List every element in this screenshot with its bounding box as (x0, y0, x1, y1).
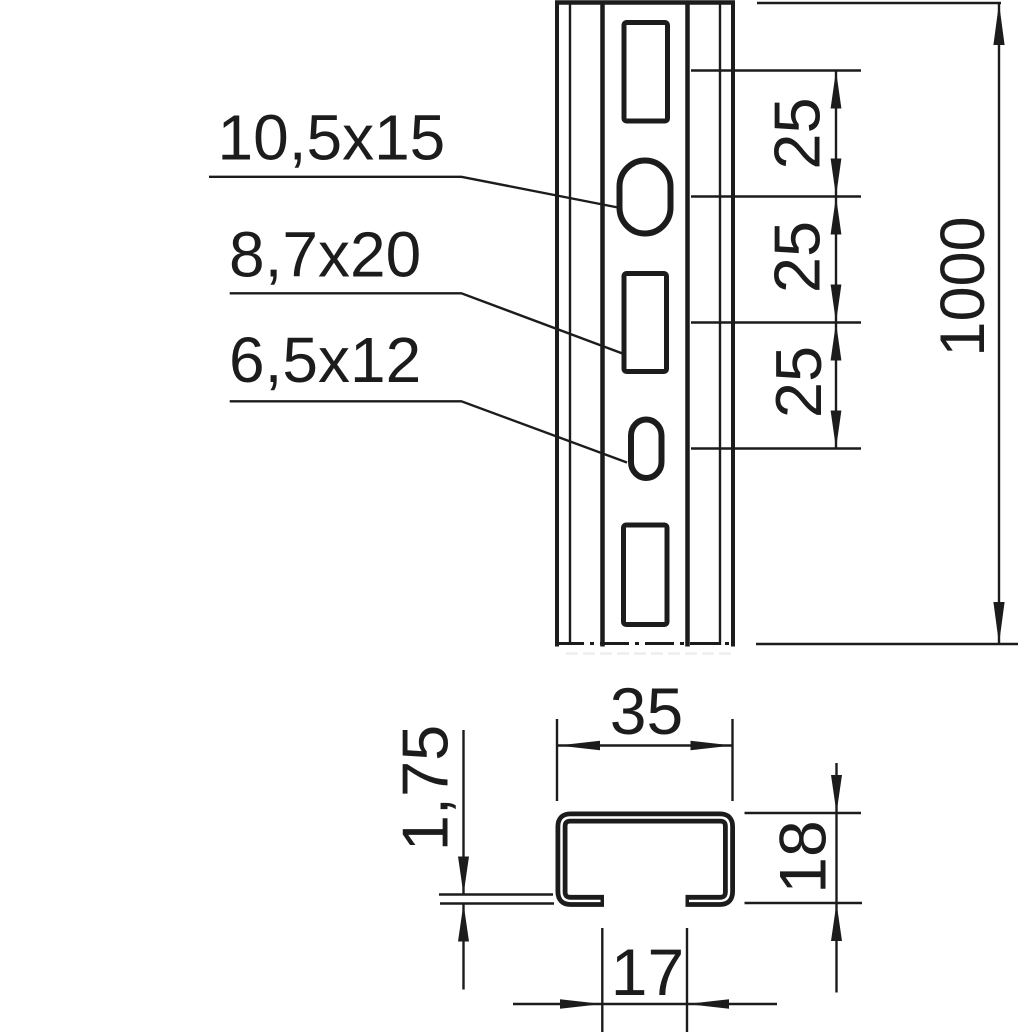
svg-text:35: 35 (610, 674, 683, 748)
svg-text:25: 25 (762, 346, 835, 418)
svg-text:8,7x20: 8,7x20 (229, 219, 421, 291)
svg-text:1,75: 1,75 (389, 725, 462, 852)
svg-text:6,5x12: 6,5x12 (229, 324, 421, 396)
svg-text:10,5x15: 10,5x15 (218, 102, 446, 174)
svg-text:17: 17 (611, 935, 684, 1009)
svg-text:25: 25 (761, 97, 834, 169)
svg-text:25: 25 (761, 221, 834, 293)
svg-text:18: 18 (766, 820, 840, 893)
svg-text:1000: 1000 (928, 216, 998, 356)
